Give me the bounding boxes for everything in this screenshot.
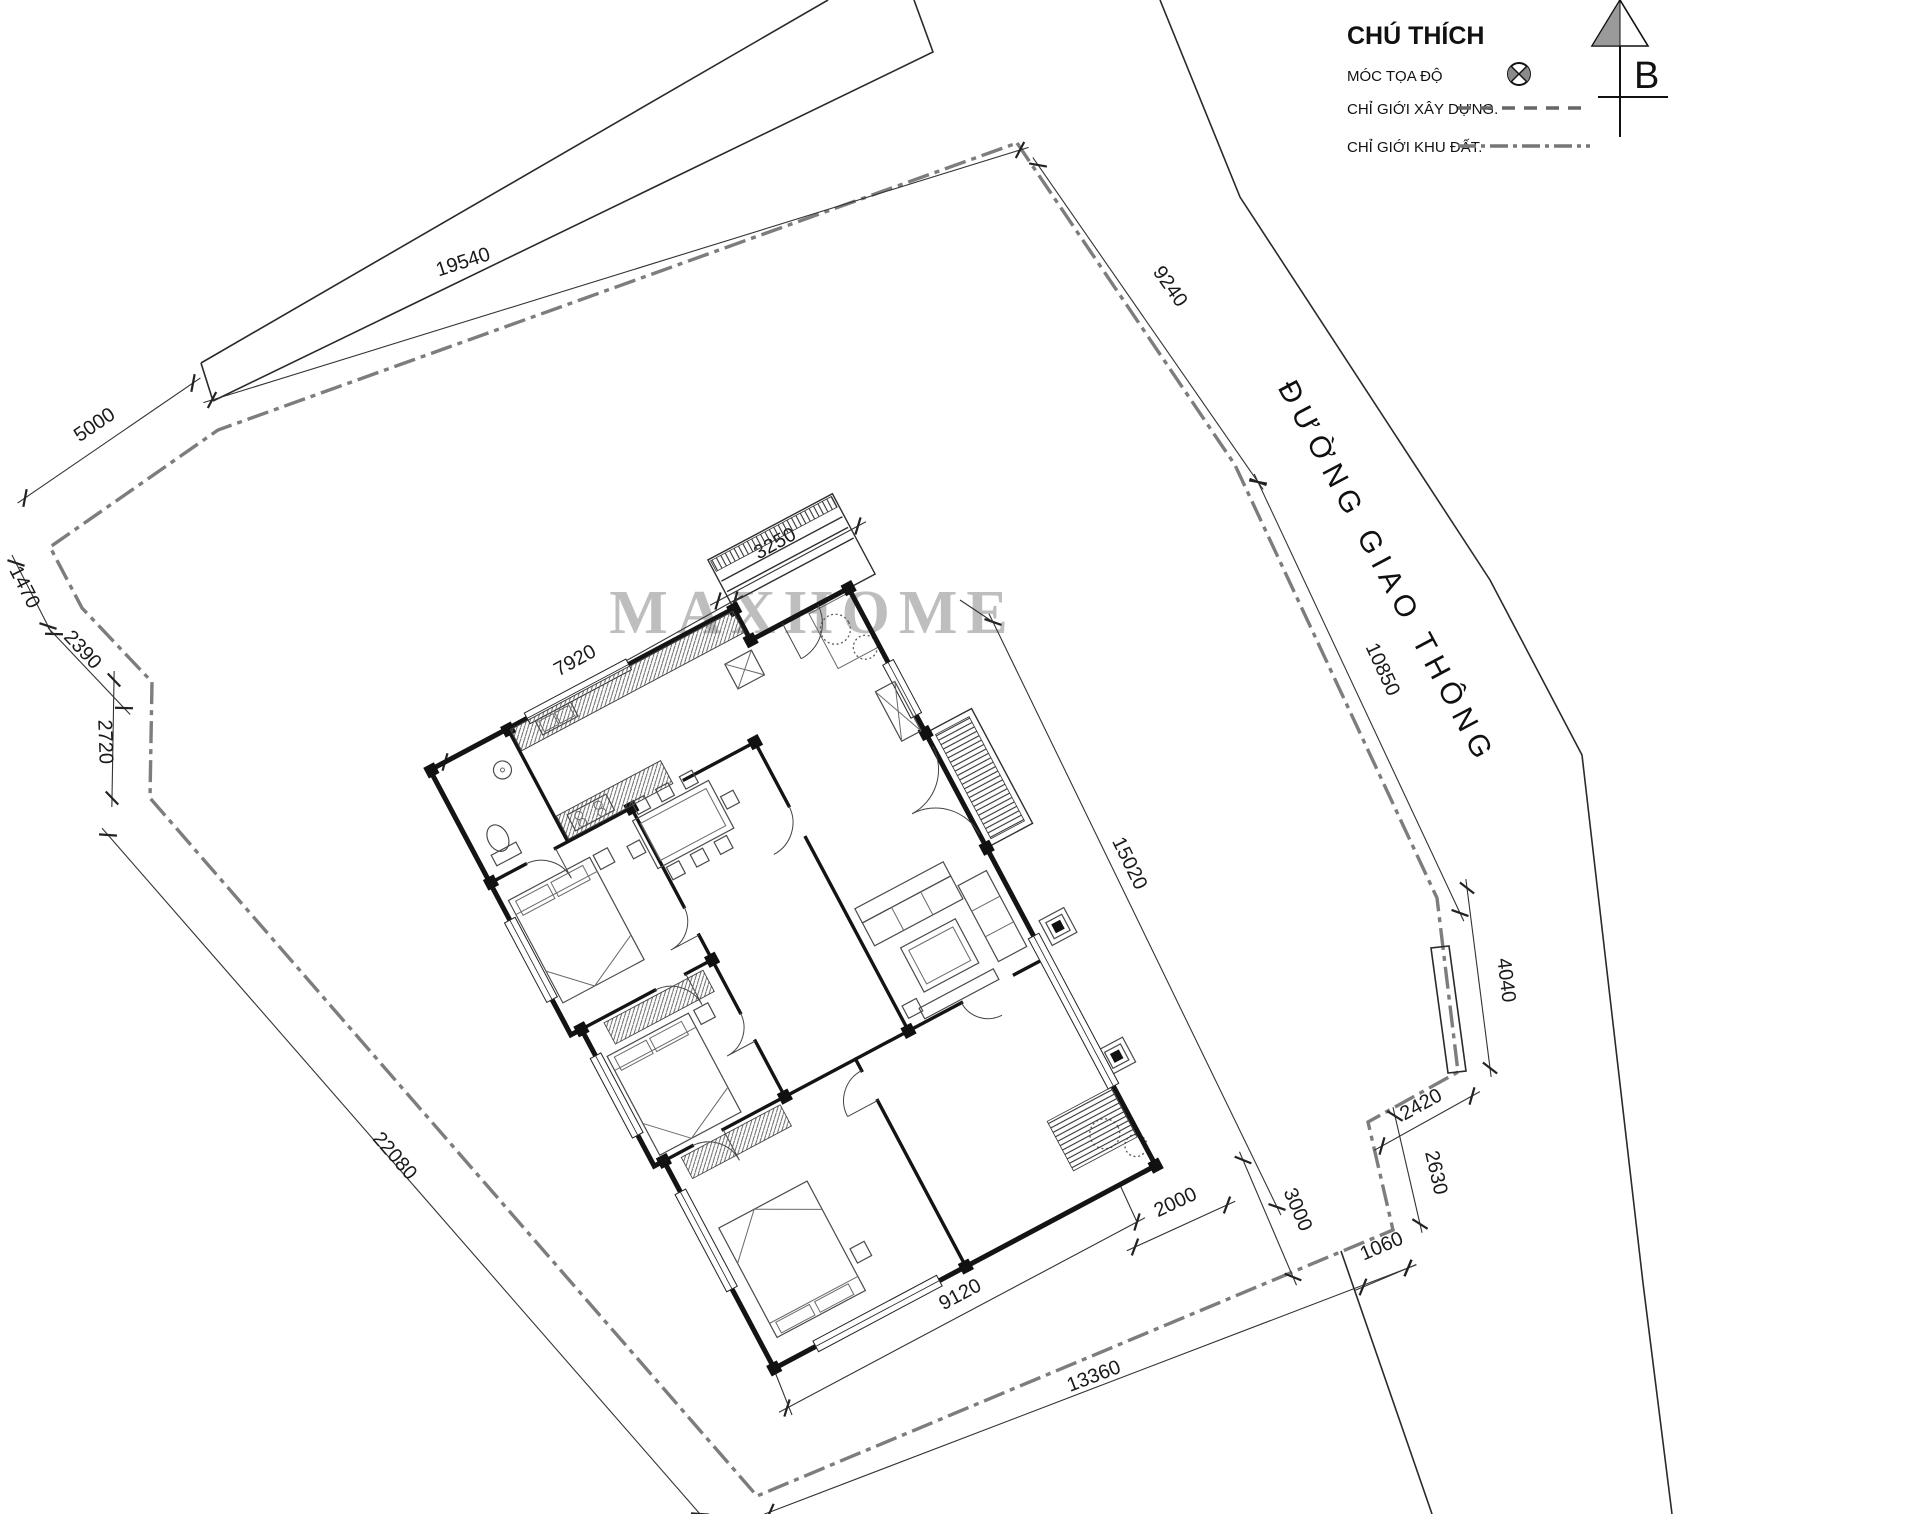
road-name-label: ĐƯỜNG GIAO THÔNG xyxy=(1271,375,1503,770)
dim-label: 2420 xyxy=(1396,1084,1446,1125)
dimension-2390: 2390 xyxy=(45,626,133,714)
dim-label: 2630 xyxy=(1420,1148,1451,1196)
dimension-2720: 2720 xyxy=(93,671,120,807)
road-edge-southeast xyxy=(1341,1251,1432,1514)
dim-label: 15020 xyxy=(1107,834,1151,894)
dimension-9240: 9240 xyxy=(1029,158,1267,490)
dim-label: 1470 xyxy=(4,562,44,612)
legend-item-label: MÓC TỌA ĐỘ xyxy=(1347,68,1443,85)
dimension-3000: 3000 xyxy=(1235,1152,1317,1286)
north-strip-outline xyxy=(201,0,933,401)
dimension-1470: 1470 xyxy=(4,555,56,634)
dim-label: 7920 xyxy=(550,640,600,681)
living-room xyxy=(766,681,1041,1025)
road-edge-east xyxy=(1160,0,1672,1514)
planters xyxy=(809,590,1151,1173)
bathroom xyxy=(454,758,549,866)
windows xyxy=(422,548,1164,1387)
dim-label: 9240 xyxy=(1148,262,1192,311)
dim-label: 19540 xyxy=(433,243,493,281)
legend: CHÚ THÍCH MÓC TỌA ĐỘ CHỈ GIỚI XÂY DỰNG. … xyxy=(1347,20,1590,156)
dim-label: 2000 xyxy=(1151,1183,1201,1222)
dim-label: 2390 xyxy=(59,626,105,674)
porch-east xyxy=(926,709,1033,848)
north-label: B xyxy=(1634,55,1659,97)
bedroom-3 xyxy=(681,1100,884,1337)
legend-item-label: CHỈ GIỚI XÂY DỰNG. xyxy=(1347,101,1498,118)
bedroom-1 xyxy=(508,848,661,1003)
dimension-5000: 5000 xyxy=(18,374,201,507)
boundary-gate xyxy=(1431,946,1466,1073)
dimension-19540: 19540 xyxy=(203,142,1028,408)
dim-label: 5000 xyxy=(70,403,119,446)
survey-marker-icon xyxy=(1508,63,1530,85)
dim-label: 10850 xyxy=(1361,640,1404,700)
dimension-22080: 22080 xyxy=(99,828,709,1514)
watermark-text: MAXHOME xyxy=(609,579,1016,647)
dimension-2420: 2420 xyxy=(1374,1084,1480,1154)
dimension-2630: 2630 xyxy=(1387,1107,1451,1233)
legend-title: CHÚ THÍCH xyxy=(1347,20,1485,50)
north-arrow-icon: B xyxy=(1592,0,1668,137)
dim-label: 22080 xyxy=(368,1128,421,1184)
site-plan-page: MAXHOME ĐƯỜNG GIAO THÔNG 195409240108504… xyxy=(0,0,1919,1514)
dimension-4040: 4040 xyxy=(1460,879,1520,1077)
dim-label: 2720 xyxy=(93,719,117,764)
dimension-13360: 13360 xyxy=(762,1260,1417,1514)
dim-label: 4040 xyxy=(1492,957,1519,1004)
site-plan-drawing: MAXHOME ĐƯỜNG GIAO THÔNG 195409240108504… xyxy=(0,0,1919,1514)
